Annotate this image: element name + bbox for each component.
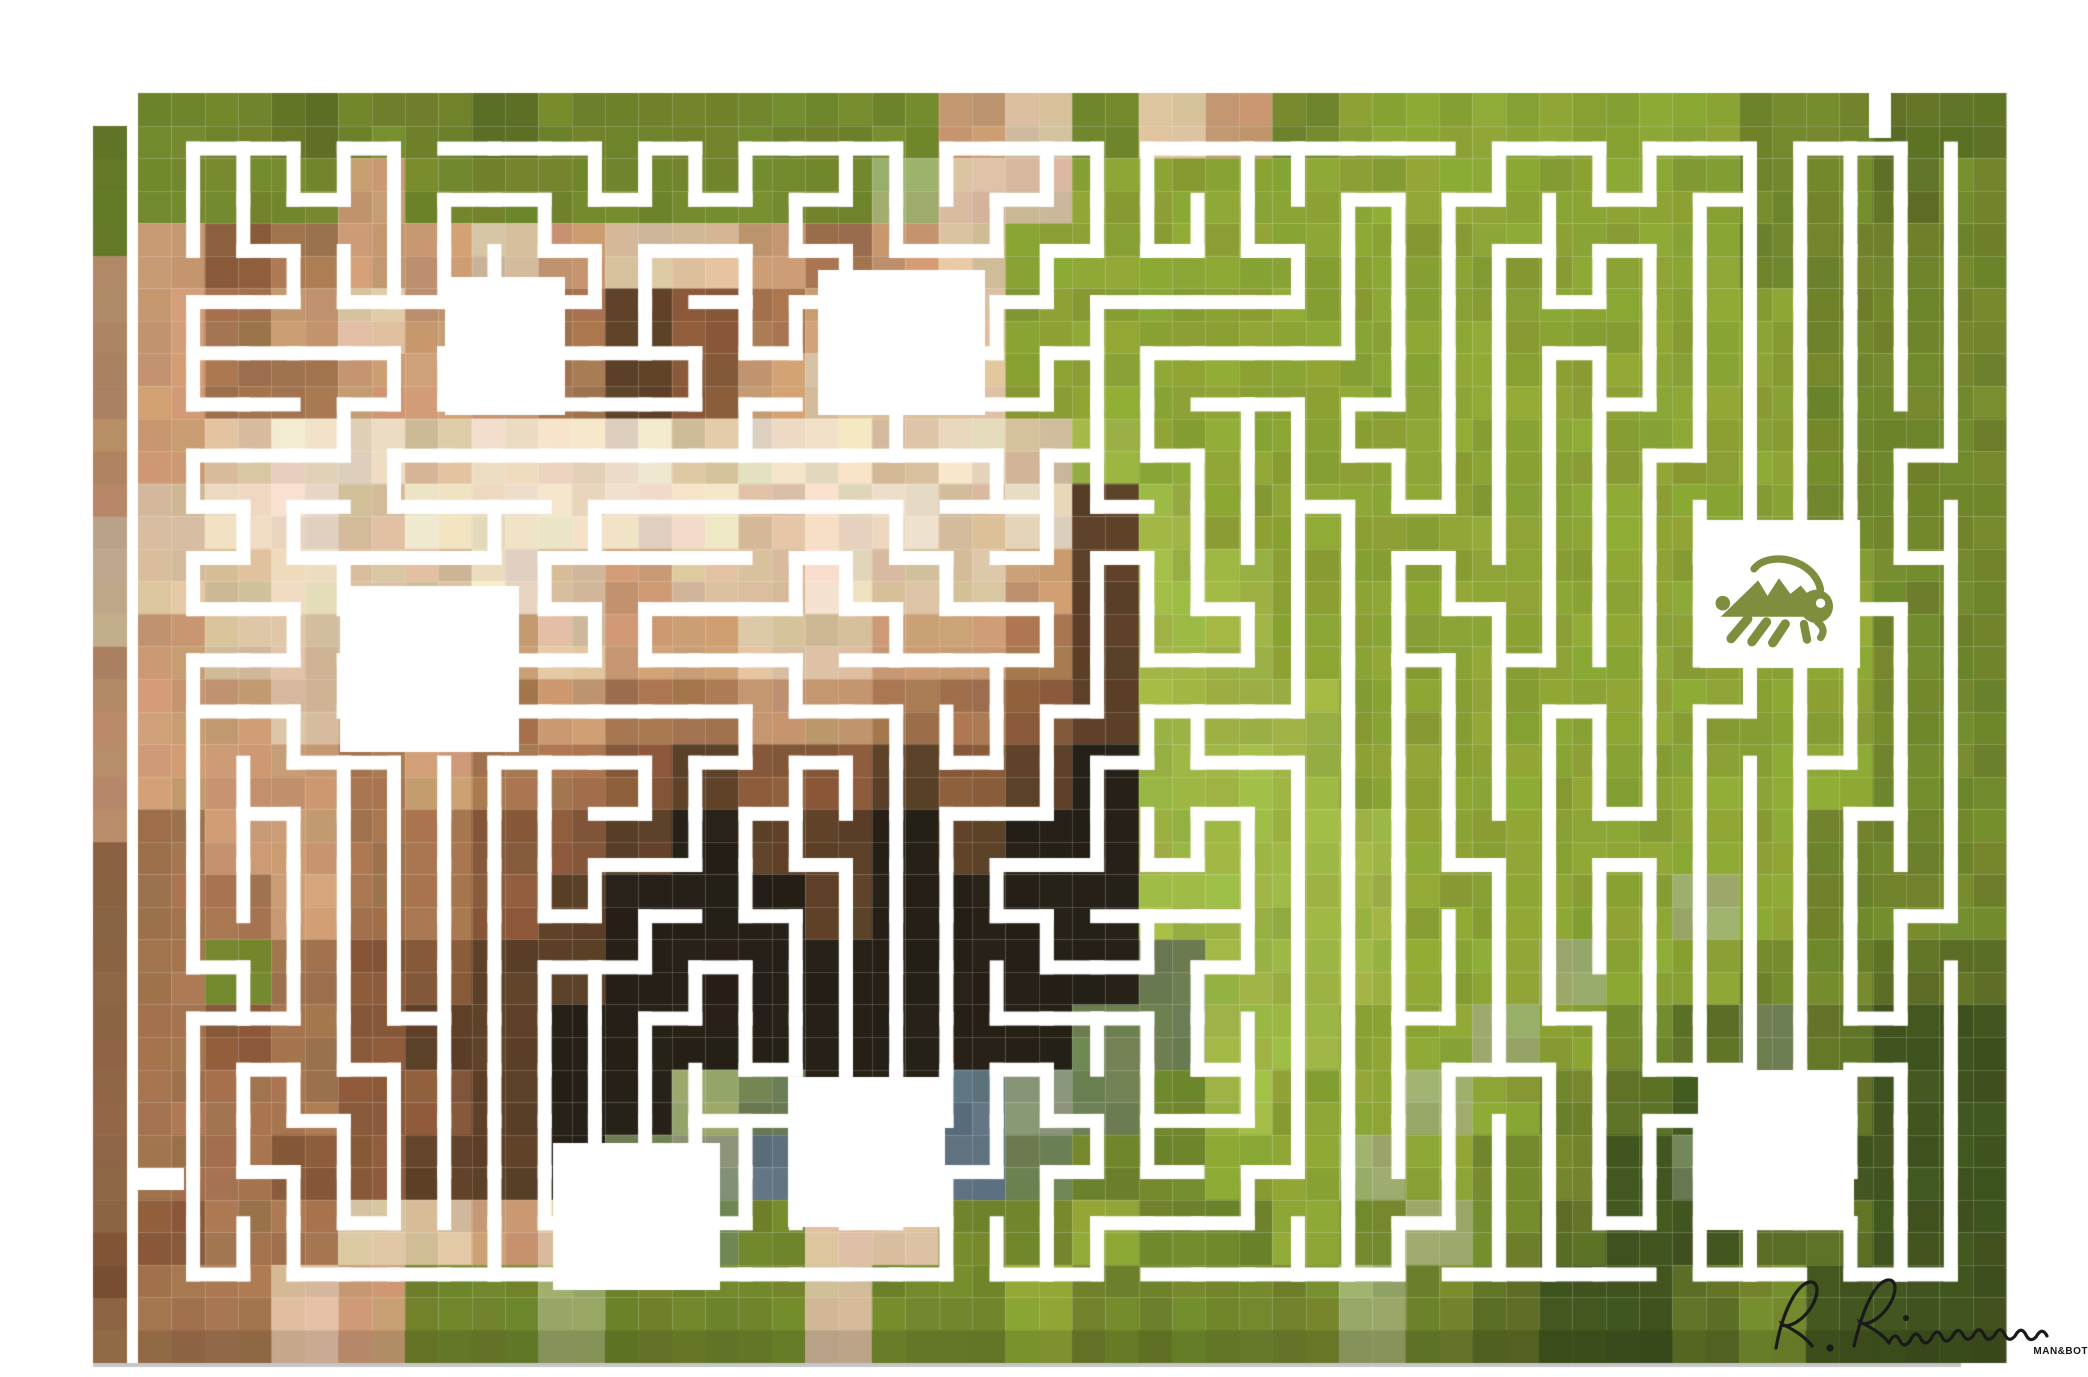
maze-artwork: MAN&BOT (0, 0, 2088, 1377)
mosaic-maze-canvas (0, 0, 2088, 1377)
watermark-text: MAN&BOT (2010, 1346, 2088, 1357)
